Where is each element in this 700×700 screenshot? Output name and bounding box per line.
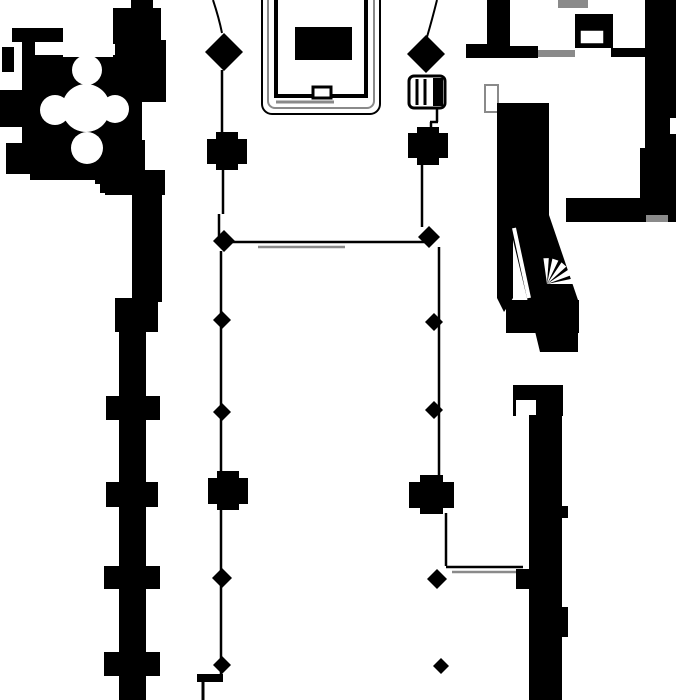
stair-box-core [433, 78, 443, 106]
small-pier [213, 656, 231, 674]
sacristy-south-shade [646, 215, 668, 222]
east-wall-notch [670, 118, 700, 134]
chapel-wall [12, 28, 63, 42]
choir-enclosure [262, 0, 380, 114]
small-pier [425, 401, 443, 419]
range-wall-notch [516, 400, 536, 416]
cross-pier [420, 475, 443, 514]
north-colonnade [205, 33, 248, 676]
floor-plan-svg [0, 0, 700, 700]
sacristy-top-shade [558, 0, 588, 8]
west-wall-spur [497, 103, 513, 312]
quatrefoil-lobe-north [72, 55, 102, 85]
quatrefoil-lobe-south [71, 132, 103, 164]
cross-pier [216, 132, 238, 170]
range-wall [529, 415, 562, 700]
altar [295, 27, 352, 60]
chapel-buttress [0, 90, 30, 127]
chapel-buttress [2, 47, 14, 72]
sacristy-west-mass [513, 103, 549, 215]
apse-arc-left [213, 0, 222, 33]
facade-wall [113, 8, 161, 44]
northeast-sacristy [466, 0, 700, 352]
aisle-wall-block [115, 298, 158, 332]
small-pier [213, 311, 231, 329]
sacristy-north-wall [486, 46, 538, 58]
range-buttress [516, 569, 532, 589]
small-pier [212, 568, 232, 588]
aisle-line-jog [197, 674, 223, 682]
small-pier [213, 403, 231, 421]
transept-step-line [219, 242, 430, 247]
east-range-wall [513, 385, 568, 700]
chapel-north-opening [63, 30, 113, 57]
apse-arc-right [427, 0, 437, 37]
corner-pier [418, 226, 440, 248]
chapel-buttress [6, 143, 33, 174]
small-pier [433, 658, 449, 674]
range-buttress [560, 506, 568, 518]
sacristy-north-wall [611, 48, 650, 57]
cross-pier [217, 471, 239, 510]
west-door-opening [485, 85, 498, 112]
range-buttress [562, 607, 568, 637]
floor-plan [0, 0, 700, 700]
large-pier [205, 33, 243, 71]
sacristy-west-wall [487, 0, 510, 52]
aisle-wall [132, 190, 162, 302]
quatrefoil-center [62, 84, 110, 132]
small-pier [425, 313, 443, 331]
large-pier [407, 35, 445, 73]
stair-landing-block [506, 300, 579, 333]
aisle-wall [119, 332, 146, 700]
small-pier [427, 569, 447, 589]
north-niche-inset [580, 30, 604, 44]
altar-step [313, 87, 331, 98]
sacristy-east-wall [640, 148, 676, 198]
sacristy-north-wall-shade [538, 50, 575, 57]
facade-wall [129, 98, 142, 146]
cross-pier [417, 127, 439, 165]
south-aisle-wall [104, 190, 223, 700]
corner-pier [213, 230, 235, 252]
